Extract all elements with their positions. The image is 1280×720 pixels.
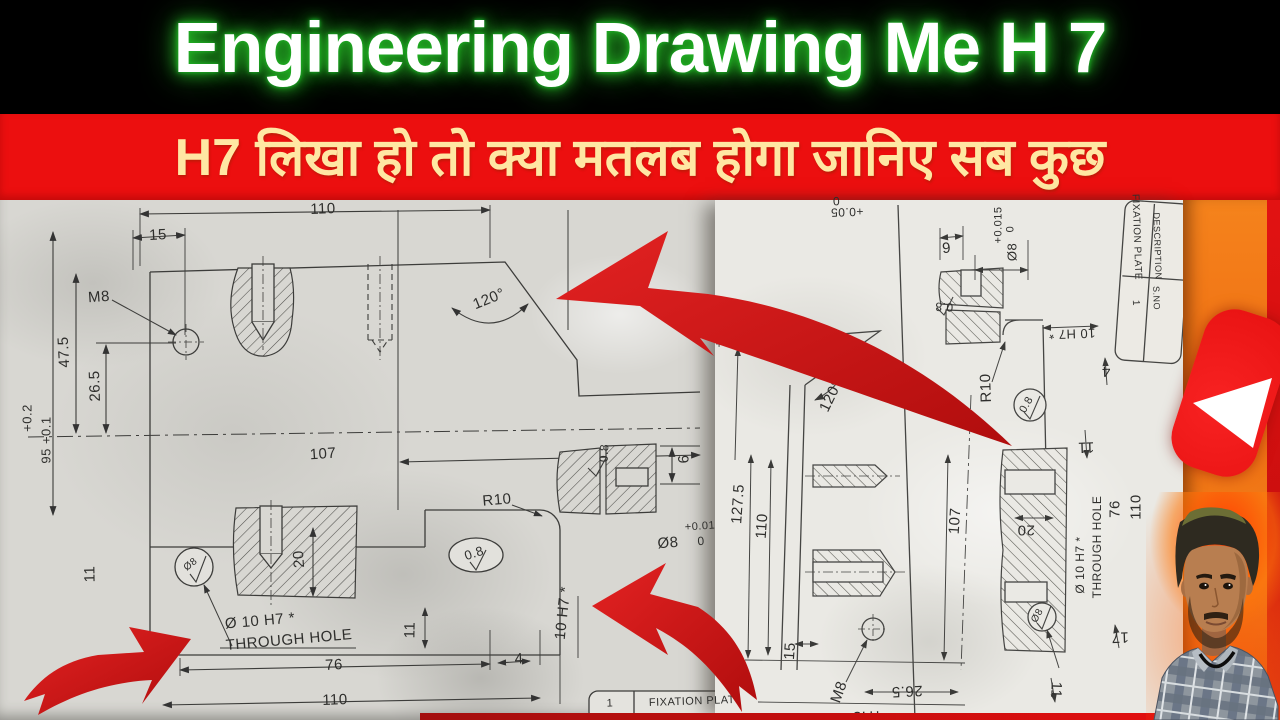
title-bar: Engineering Drawing Me H 7 (0, 0, 1280, 114)
right-drawing-linework (715, 200, 1190, 720)
presenter-illustration (1146, 492, 1280, 720)
drawing-area (0, 200, 1280, 720)
subtitle-banner: H7 लिखा हो तो क्या मतलब होगा जानिए सब कु… (0, 114, 1280, 200)
video-thumbnail: Engineering Drawing Me H 7 H7 लिखा हो तो… (0, 0, 1280, 720)
left-drawing-linework (0, 200, 775, 720)
presenter-photo (1146, 492, 1280, 720)
video-title: Engineering Drawing Me H 7 (0, 8, 1280, 89)
left-drawing-paper (0, 200, 775, 720)
right-drawing-paper (715, 200, 1190, 720)
subtitle-text: H7 लिखा हो तो क्या मतलब होगा जानिए सब कु… (0, 120, 1280, 191)
